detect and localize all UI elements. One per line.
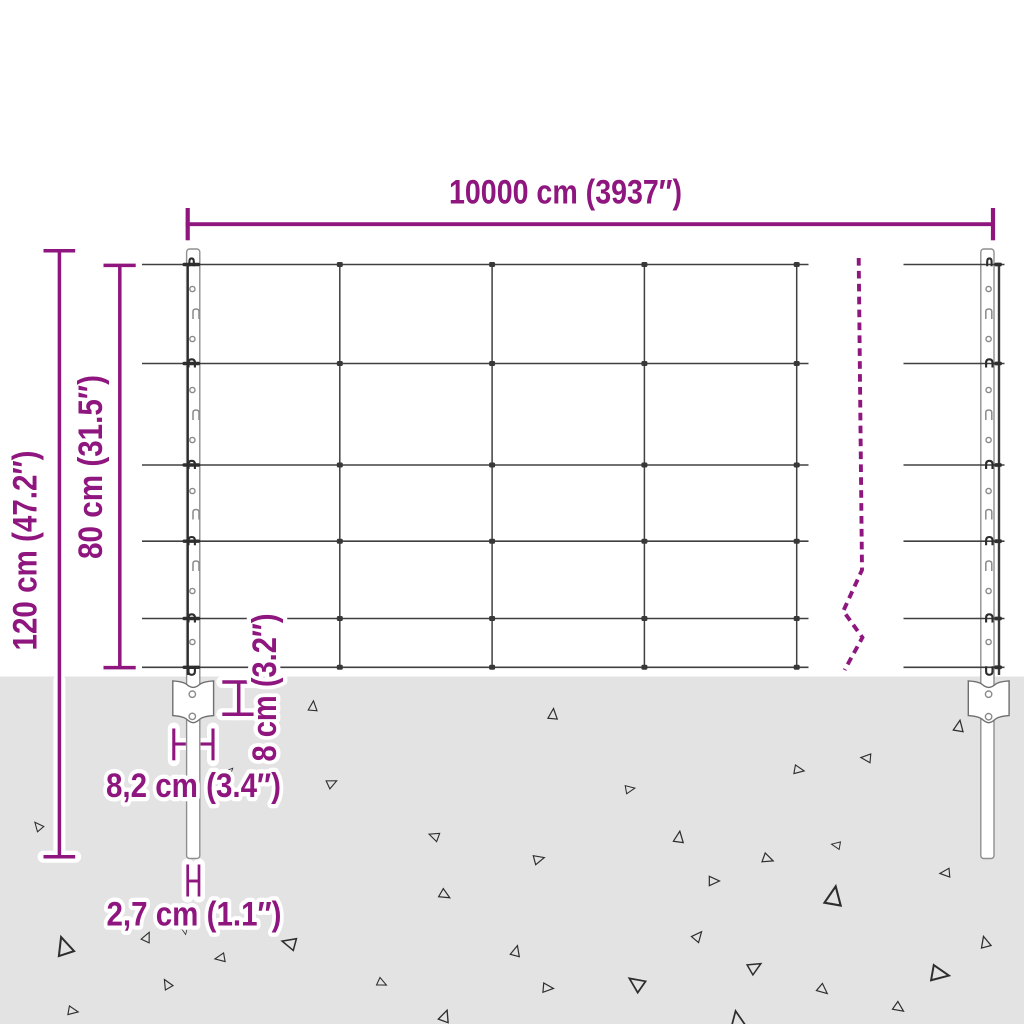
svg-text:80 cm (31.5″): 80 cm (31.5″) [72, 375, 110, 559]
svg-text:10000 cm (3937″): 10000 cm (3937″) [449, 173, 682, 211]
svg-text:120 cm (47.2″): 120 cm (47.2″) [7, 451, 45, 651]
svg-text:8,2 cm (3.4″): 8,2 cm (3.4″) [106, 767, 281, 805]
svg-text:8 cm (3.2″): 8 cm (3.2″) [246, 614, 284, 762]
svg-text:2,7 cm (1.1″): 2,7 cm (1.1″) [107, 896, 282, 934]
